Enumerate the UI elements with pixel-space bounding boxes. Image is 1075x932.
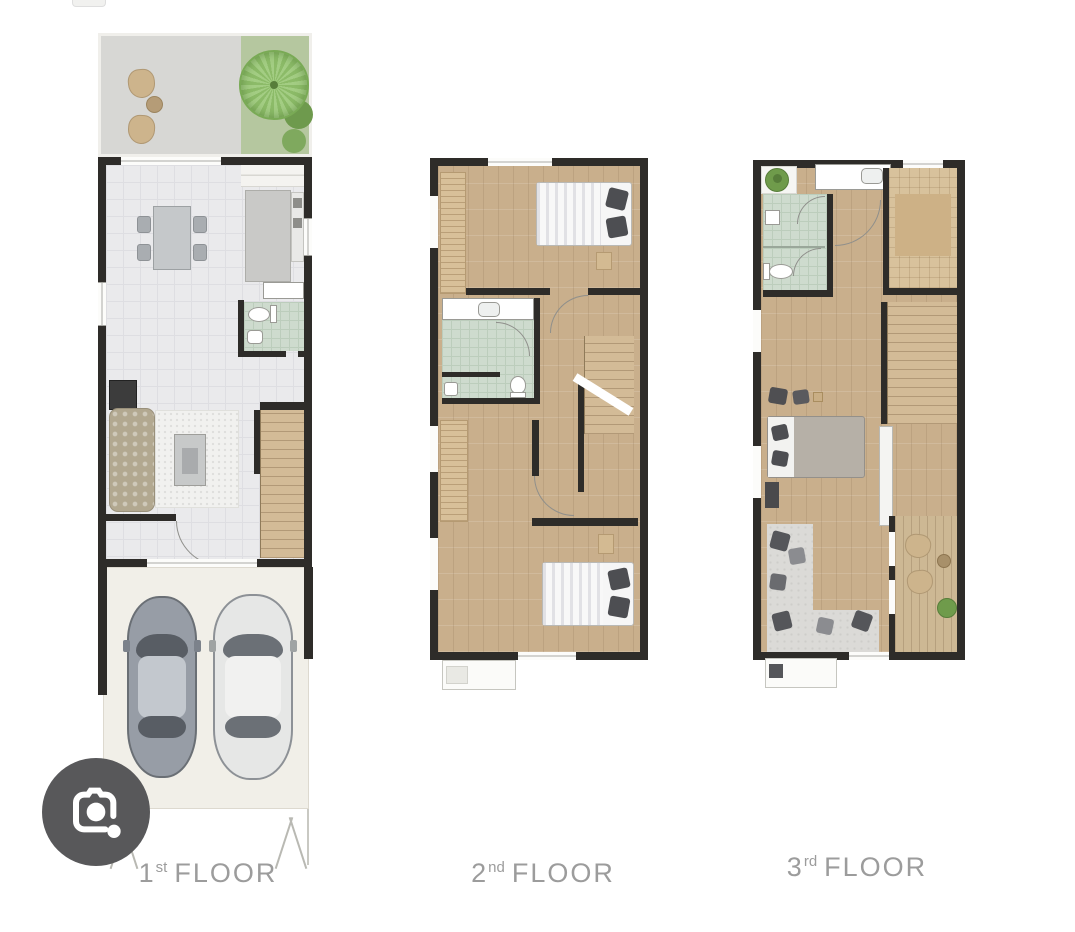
car-mirror xyxy=(209,640,216,652)
bed xyxy=(542,562,634,626)
shower-fixture xyxy=(765,210,780,225)
stairs xyxy=(260,410,304,558)
wall xyxy=(827,194,833,292)
dining-chair xyxy=(137,244,151,261)
pillow xyxy=(607,595,630,618)
wall xyxy=(466,288,550,295)
camera-lens-button[interactable] xyxy=(42,758,150,866)
floor-2-ordinal: nd xyxy=(488,859,505,876)
dining-table xyxy=(153,206,191,270)
patio-chair xyxy=(127,114,156,145)
balcony-step xyxy=(446,666,468,684)
pillow xyxy=(771,450,789,468)
wall xyxy=(106,514,176,521)
window xyxy=(518,652,576,660)
sink xyxy=(478,302,500,317)
top-edge-artifact xyxy=(72,0,106,7)
tv-console xyxy=(109,380,137,410)
entry-steps xyxy=(241,165,304,187)
wall xyxy=(238,351,286,357)
garage-wall xyxy=(304,567,313,659)
window xyxy=(903,160,943,168)
driveway-mark xyxy=(289,817,308,869)
toilet-tank xyxy=(763,263,770,280)
patio-sliding-door xyxy=(121,157,221,165)
floor-cushion xyxy=(816,617,835,636)
window xyxy=(488,158,552,166)
patio-side-table xyxy=(146,96,163,113)
dining-chair xyxy=(193,244,207,261)
wardrobe xyxy=(440,420,468,522)
pillow xyxy=(605,187,629,211)
tree-center xyxy=(270,81,278,89)
stair-void xyxy=(879,426,893,526)
wall xyxy=(957,160,965,660)
wall xyxy=(532,518,638,526)
wall xyxy=(588,288,640,295)
car-rear-window xyxy=(138,716,186,738)
window xyxy=(430,426,438,472)
wall xyxy=(98,157,106,567)
stair-wall xyxy=(260,402,304,410)
floor-2-word: FLOOR xyxy=(512,858,615,888)
floor-3-number: 3 xyxy=(787,852,804,882)
sofa xyxy=(109,408,155,512)
pillow xyxy=(607,567,631,591)
floor-cushion xyxy=(769,573,787,591)
desk-chair xyxy=(792,389,810,405)
garden-bush xyxy=(282,129,306,153)
window xyxy=(98,282,106,326)
sink xyxy=(247,330,263,344)
window xyxy=(430,196,438,248)
stair-wall xyxy=(578,384,584,492)
front-garden xyxy=(98,33,312,157)
stair-wall xyxy=(881,302,887,424)
floor-2-label: 2ndFLOOR xyxy=(468,858,618,889)
car-roof xyxy=(138,656,186,718)
toilet-tank xyxy=(270,305,277,323)
wall xyxy=(442,372,500,377)
wall xyxy=(640,158,648,660)
floor-1-number: 1 xyxy=(139,858,156,888)
floor-3-ordinal: rd xyxy=(804,853,817,870)
kitchen-cabinet xyxy=(263,282,304,299)
window xyxy=(849,652,891,660)
sink xyxy=(444,382,458,396)
toilet xyxy=(769,264,793,279)
garage-door xyxy=(147,559,257,567)
wall xyxy=(442,398,534,404)
second-floor-plan xyxy=(430,158,648,698)
bed-duvet xyxy=(543,563,603,625)
car-mirror xyxy=(194,640,201,652)
wall xyxy=(883,288,957,295)
car-rear-window xyxy=(225,716,281,738)
coffee-table-top xyxy=(182,448,198,474)
wall xyxy=(532,420,539,476)
plant-center xyxy=(773,174,782,183)
floor-1-word: FLOOR xyxy=(174,858,277,888)
floor-2-number: 2 xyxy=(471,858,488,888)
first-floor-plan xyxy=(95,30,317,855)
window xyxy=(753,310,761,352)
floor-1-ordinal: st xyxy=(156,859,168,876)
side-table xyxy=(813,392,823,402)
nightstand xyxy=(596,252,612,270)
car-gray xyxy=(127,596,197,778)
kitchen-sink xyxy=(293,198,302,208)
floor-3-label: 3rdFLOOR xyxy=(782,852,932,883)
wall xyxy=(763,290,833,297)
wall xyxy=(298,351,304,357)
patio-chair xyxy=(127,68,156,99)
balcony-step xyxy=(769,664,783,678)
tv-console xyxy=(765,482,779,508)
terrace-table xyxy=(937,554,951,568)
window xyxy=(430,538,438,590)
floor-cushion xyxy=(788,547,807,566)
window xyxy=(753,446,761,498)
wall xyxy=(534,298,540,404)
bed-master xyxy=(767,416,865,478)
wall xyxy=(753,160,761,660)
floor-1-label: 1stFLOOR xyxy=(133,858,283,889)
kitchen-counter xyxy=(245,190,291,282)
window xyxy=(304,218,312,256)
desk-chair xyxy=(768,387,789,406)
dining-chair xyxy=(137,216,151,233)
bed-duvet xyxy=(537,183,601,245)
camera-lens-icon xyxy=(64,780,128,844)
terrace-plant xyxy=(937,598,957,618)
pillow xyxy=(605,215,628,238)
kitchen-stove xyxy=(293,218,302,228)
wall xyxy=(883,168,889,288)
dining-chair xyxy=(193,216,207,233)
car-mirror xyxy=(123,640,130,652)
car-mirror xyxy=(290,640,297,652)
driveway-edge xyxy=(307,809,309,865)
toilet xyxy=(248,307,270,322)
wardrobe xyxy=(440,172,466,294)
floor-3-word: FLOOR xyxy=(824,852,927,882)
third-floor-plan xyxy=(753,160,968,695)
nightstand xyxy=(598,534,614,554)
sink xyxy=(861,168,883,184)
stairs xyxy=(887,302,957,424)
closet-rug xyxy=(895,194,951,256)
car-white xyxy=(213,594,293,780)
garage-wall xyxy=(98,567,107,695)
bed xyxy=(536,182,632,246)
car-roof xyxy=(225,656,281,718)
floorplan-canvas: 1stFLOOR 2ndFLOOR 3rdFLOOR xyxy=(0,0,1075,932)
